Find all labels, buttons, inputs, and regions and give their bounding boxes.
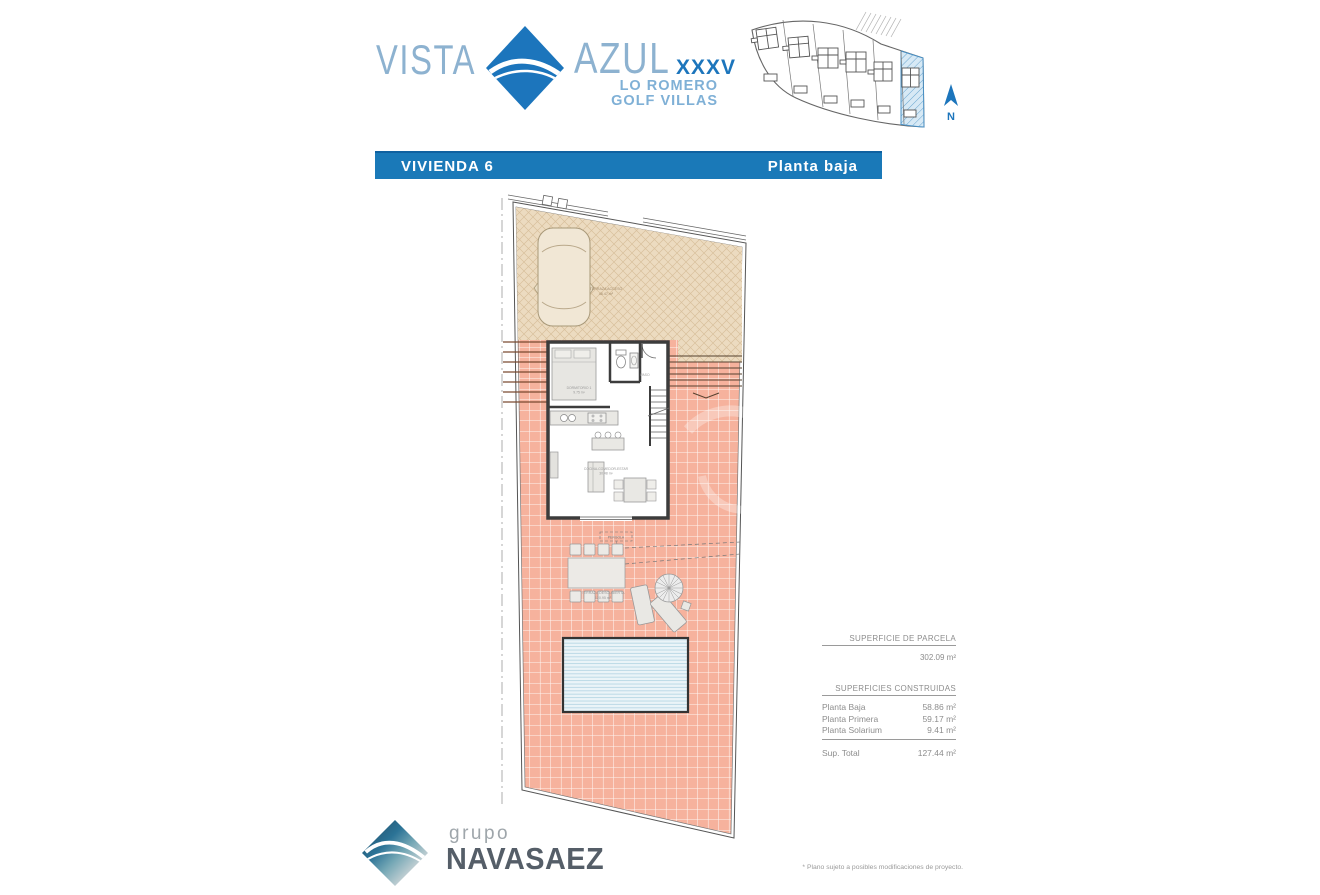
row-value: 58.86 m² bbox=[922, 702, 956, 714]
title-bar: VIVIENDA 6 Planta baja bbox=[375, 151, 882, 179]
row-value: 59.17 m² bbox=[922, 714, 956, 726]
total-value: 127.44 m² bbox=[918, 748, 956, 758]
title-vivienda: VIVIENDA 6 bbox=[401, 158, 494, 175]
dormitorio-label: DORMITORIO 1 bbox=[567, 386, 592, 390]
terraza-descubierta-area: 120.95 m² bbox=[595, 596, 612, 600]
logo-diamond-icon bbox=[486, 26, 564, 110]
site-plan-map: N bbox=[738, 10, 968, 132]
north-label: N bbox=[947, 111, 955, 123]
logo-subtitle-line1: LO ROMERO bbox=[592, 79, 718, 94]
logo-word-vista: VISTA bbox=[376, 36, 476, 84]
row-value: 9.41 m² bbox=[927, 725, 956, 737]
surfaces-table: SUPERFICIE DE PARCELA 302.09 m² SUPERFIC… bbox=[822, 634, 956, 758]
car bbox=[534, 228, 594, 326]
pergola-label: PERGOLA bbox=[608, 536, 625, 540]
surfaces-rows: Planta Baja 58.86 m² Planta Primera 59.1… bbox=[822, 702, 956, 740]
terraza-acceso-area: 46.47 m² bbox=[599, 292, 614, 296]
dormitorio-area: 9.75 m² bbox=[573, 391, 585, 395]
navasaez-diamond-icon bbox=[362, 820, 428, 886]
row-label: Planta Primera bbox=[822, 714, 878, 726]
logo-subtitle: LO ROMERO GOLF VILLAS bbox=[592, 79, 718, 109]
table-row: Planta Primera 59.17 m² bbox=[822, 714, 956, 726]
salon-label: COCINA-COMEDOR-ESTAR bbox=[584, 467, 629, 471]
logo-word-azul: AZUL bbox=[574, 34, 670, 84]
swimming-pool bbox=[563, 638, 688, 712]
house: DORMITORIO 1 9.75 m² PASO COCINA-COMEDOR… bbox=[548, 342, 669, 521]
parcela-value: 302.09 m² bbox=[822, 653, 956, 662]
paso-label: PASO bbox=[640, 373, 650, 377]
row-label: Planta Baja bbox=[822, 702, 865, 714]
footer-logo-navasaez: NAVASAEZ bbox=[446, 841, 604, 877]
north-arrow-icon bbox=[944, 84, 958, 106]
table-row: Planta Baja 58.86 m² bbox=[822, 702, 956, 714]
terraza-descubierta-label: TERRAZA DESCUBIERTA bbox=[582, 591, 625, 595]
total-row: Sup. Total 127.44 m² bbox=[822, 748, 956, 758]
construidas-heading: SUPERFICIES CONSTRUIDAS bbox=[822, 684, 956, 696]
parcela-heading: SUPERFICIE DE PARCELA bbox=[822, 634, 956, 646]
row-label: Planta Solarium bbox=[822, 725, 882, 737]
title-planta: Planta baja bbox=[768, 158, 858, 175]
table-row: Planta Solarium 9.41 m² bbox=[822, 725, 956, 737]
terraza-acceso-label: TERRAZA ACCESO bbox=[590, 287, 623, 291]
footnote: * Plano sujeto a posibles modificaciones… bbox=[777, 864, 963, 871]
logo-subtitle-line2: GOLF VILLAS bbox=[592, 94, 718, 109]
total-label: Sup. Total bbox=[822, 748, 860, 758]
page: VISTA AZUL XXXV LO ROMERO GOLF VILLAS bbox=[0, 0, 1320, 895]
site-outline bbox=[752, 21, 924, 127]
logo-numeral: XXXV bbox=[676, 56, 736, 80]
salon-area: 30.48 m² bbox=[599, 472, 613, 476]
street-hatch bbox=[856, 12, 901, 37]
